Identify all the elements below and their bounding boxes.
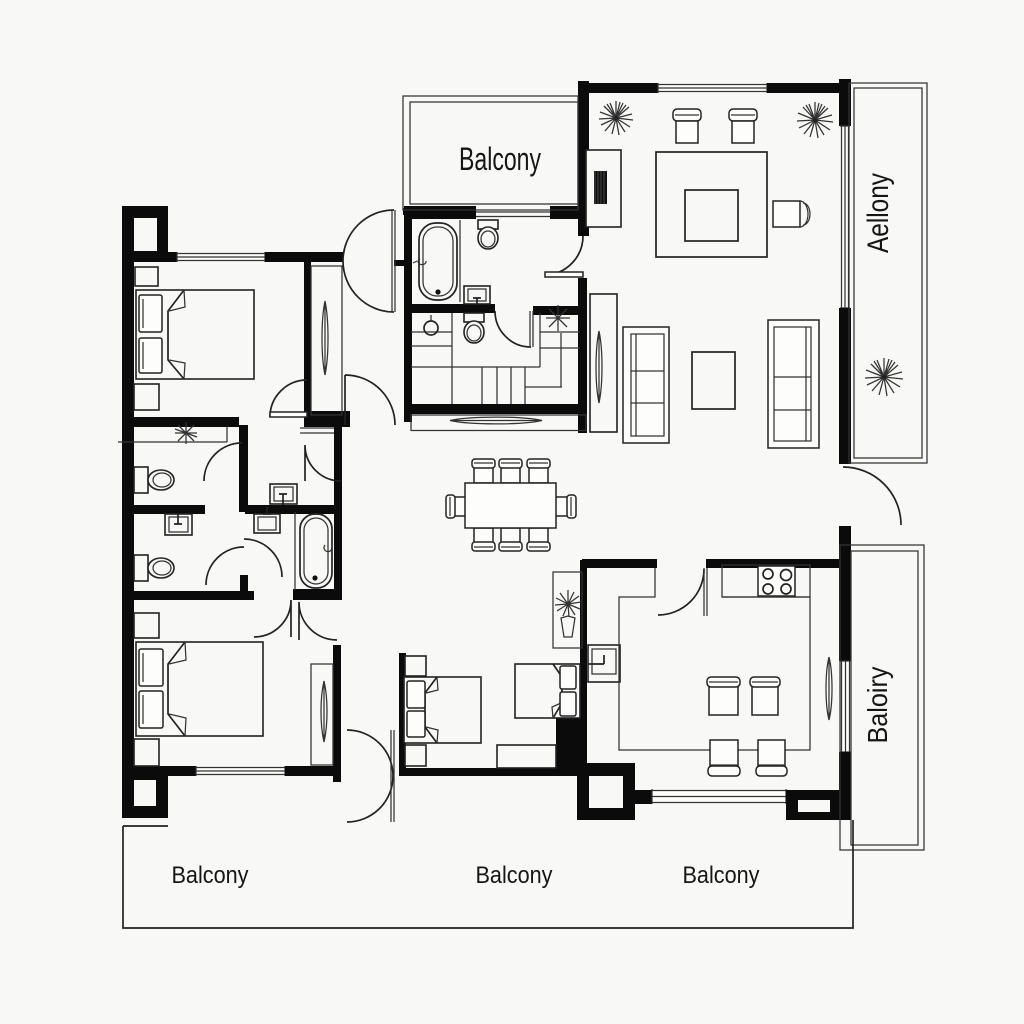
svg-text:Baloiry: Baloiry xyxy=(862,667,893,744)
svg-text:Balcony: Balcony xyxy=(683,862,760,889)
svg-text:Balcony: Balcony xyxy=(459,141,541,177)
svg-text:Aellony: Aellony xyxy=(862,173,895,253)
svg-text:Balcony: Balcony xyxy=(476,862,553,889)
svg-text:Balcony: Balcony xyxy=(172,862,249,889)
